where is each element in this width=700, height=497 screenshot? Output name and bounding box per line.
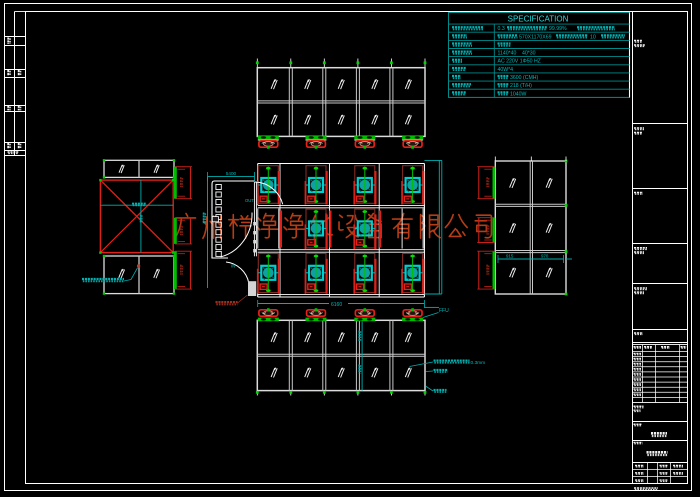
svg-text:1140*40: 1140*40 [498, 51, 517, 57]
svg-text:3600 (CMH): 3600 (CMH) [510, 75, 539, 81]
svg-text:0.3mm: 0.3mm [471, 360, 486, 366]
svg-text:5400: 5400 [226, 171, 237, 176]
svg-text:40W*4: 40W*4 [498, 67, 514, 73]
svg-text:10: 10 [590, 34, 596, 40]
svg-text:SPECIFICATION: SPECIFICATION [508, 15, 569, 24]
svg-text:915: 915 [506, 254, 514, 259]
svg-text:570X1170X69: 570X1170X69 [519, 34, 552, 40]
svg-text:99.99%: 99.99% [549, 26, 567, 32]
svg-text:AC 220V 1Φ50 HZ: AC 220V 1Φ50 HZ [498, 59, 541, 65]
svg-text:6160: 6160 [331, 302, 342, 308]
svg-text:1040W: 1040W [510, 91, 527, 97]
svg-text:218 (T/H): 218 (T/H) [510, 83, 532, 89]
svg-text:0.3: 0.3 [498, 26, 505, 32]
svg-text:IN: IN [231, 264, 235, 269]
svg-text:40*30: 40*30 [522, 51, 536, 57]
svg-text:FFU: FFU [439, 308, 449, 314]
svg-text:OUT: OUT [245, 198, 254, 203]
svg-text:970: 970 [541, 254, 549, 259]
